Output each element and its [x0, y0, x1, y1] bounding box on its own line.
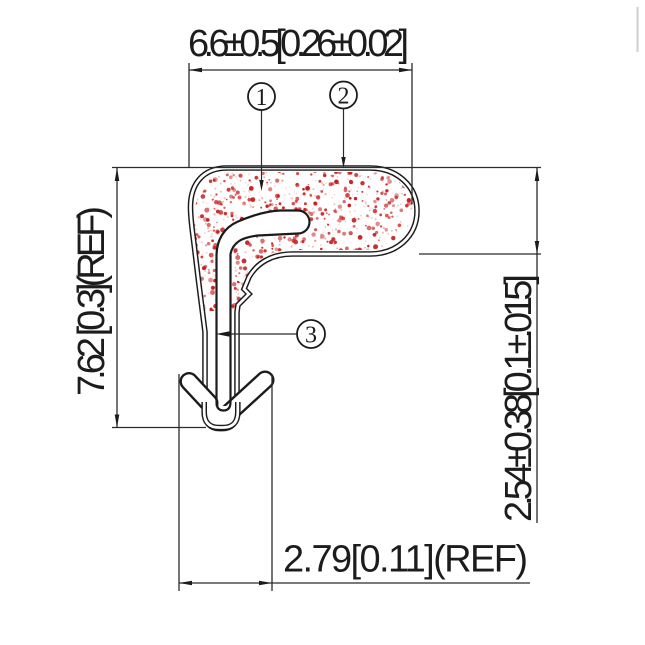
dim-right-label: 2.54±0.38[0.1±.015] — [498, 274, 540, 522]
dim-bottom-label: 2.79[0.11](REF) — [283, 539, 528, 581]
dim-left-label: 7.62 [0.3](REF) — [71, 206, 113, 396]
dim-top-label: 6.6±0.5[0.26±0.02] — [188, 23, 409, 65]
seal-profile-drawing: 6.6±0.5[0.26±0.02] 7.62 [0.3](REF) 2.54±… — [0, 0, 645, 645]
callout-3-number: 3 — [305, 323, 317, 349]
callout-2-number: 2 — [338, 84, 350, 110]
callout-1-number: 1 — [256, 85, 268, 111]
edge-artifact — [637, 7, 639, 52]
technical-drawing-page: 6.6±0.5[0.26±0.02] 7.62 [0.3](REF) 2.54±… — [0, 0, 645, 645]
